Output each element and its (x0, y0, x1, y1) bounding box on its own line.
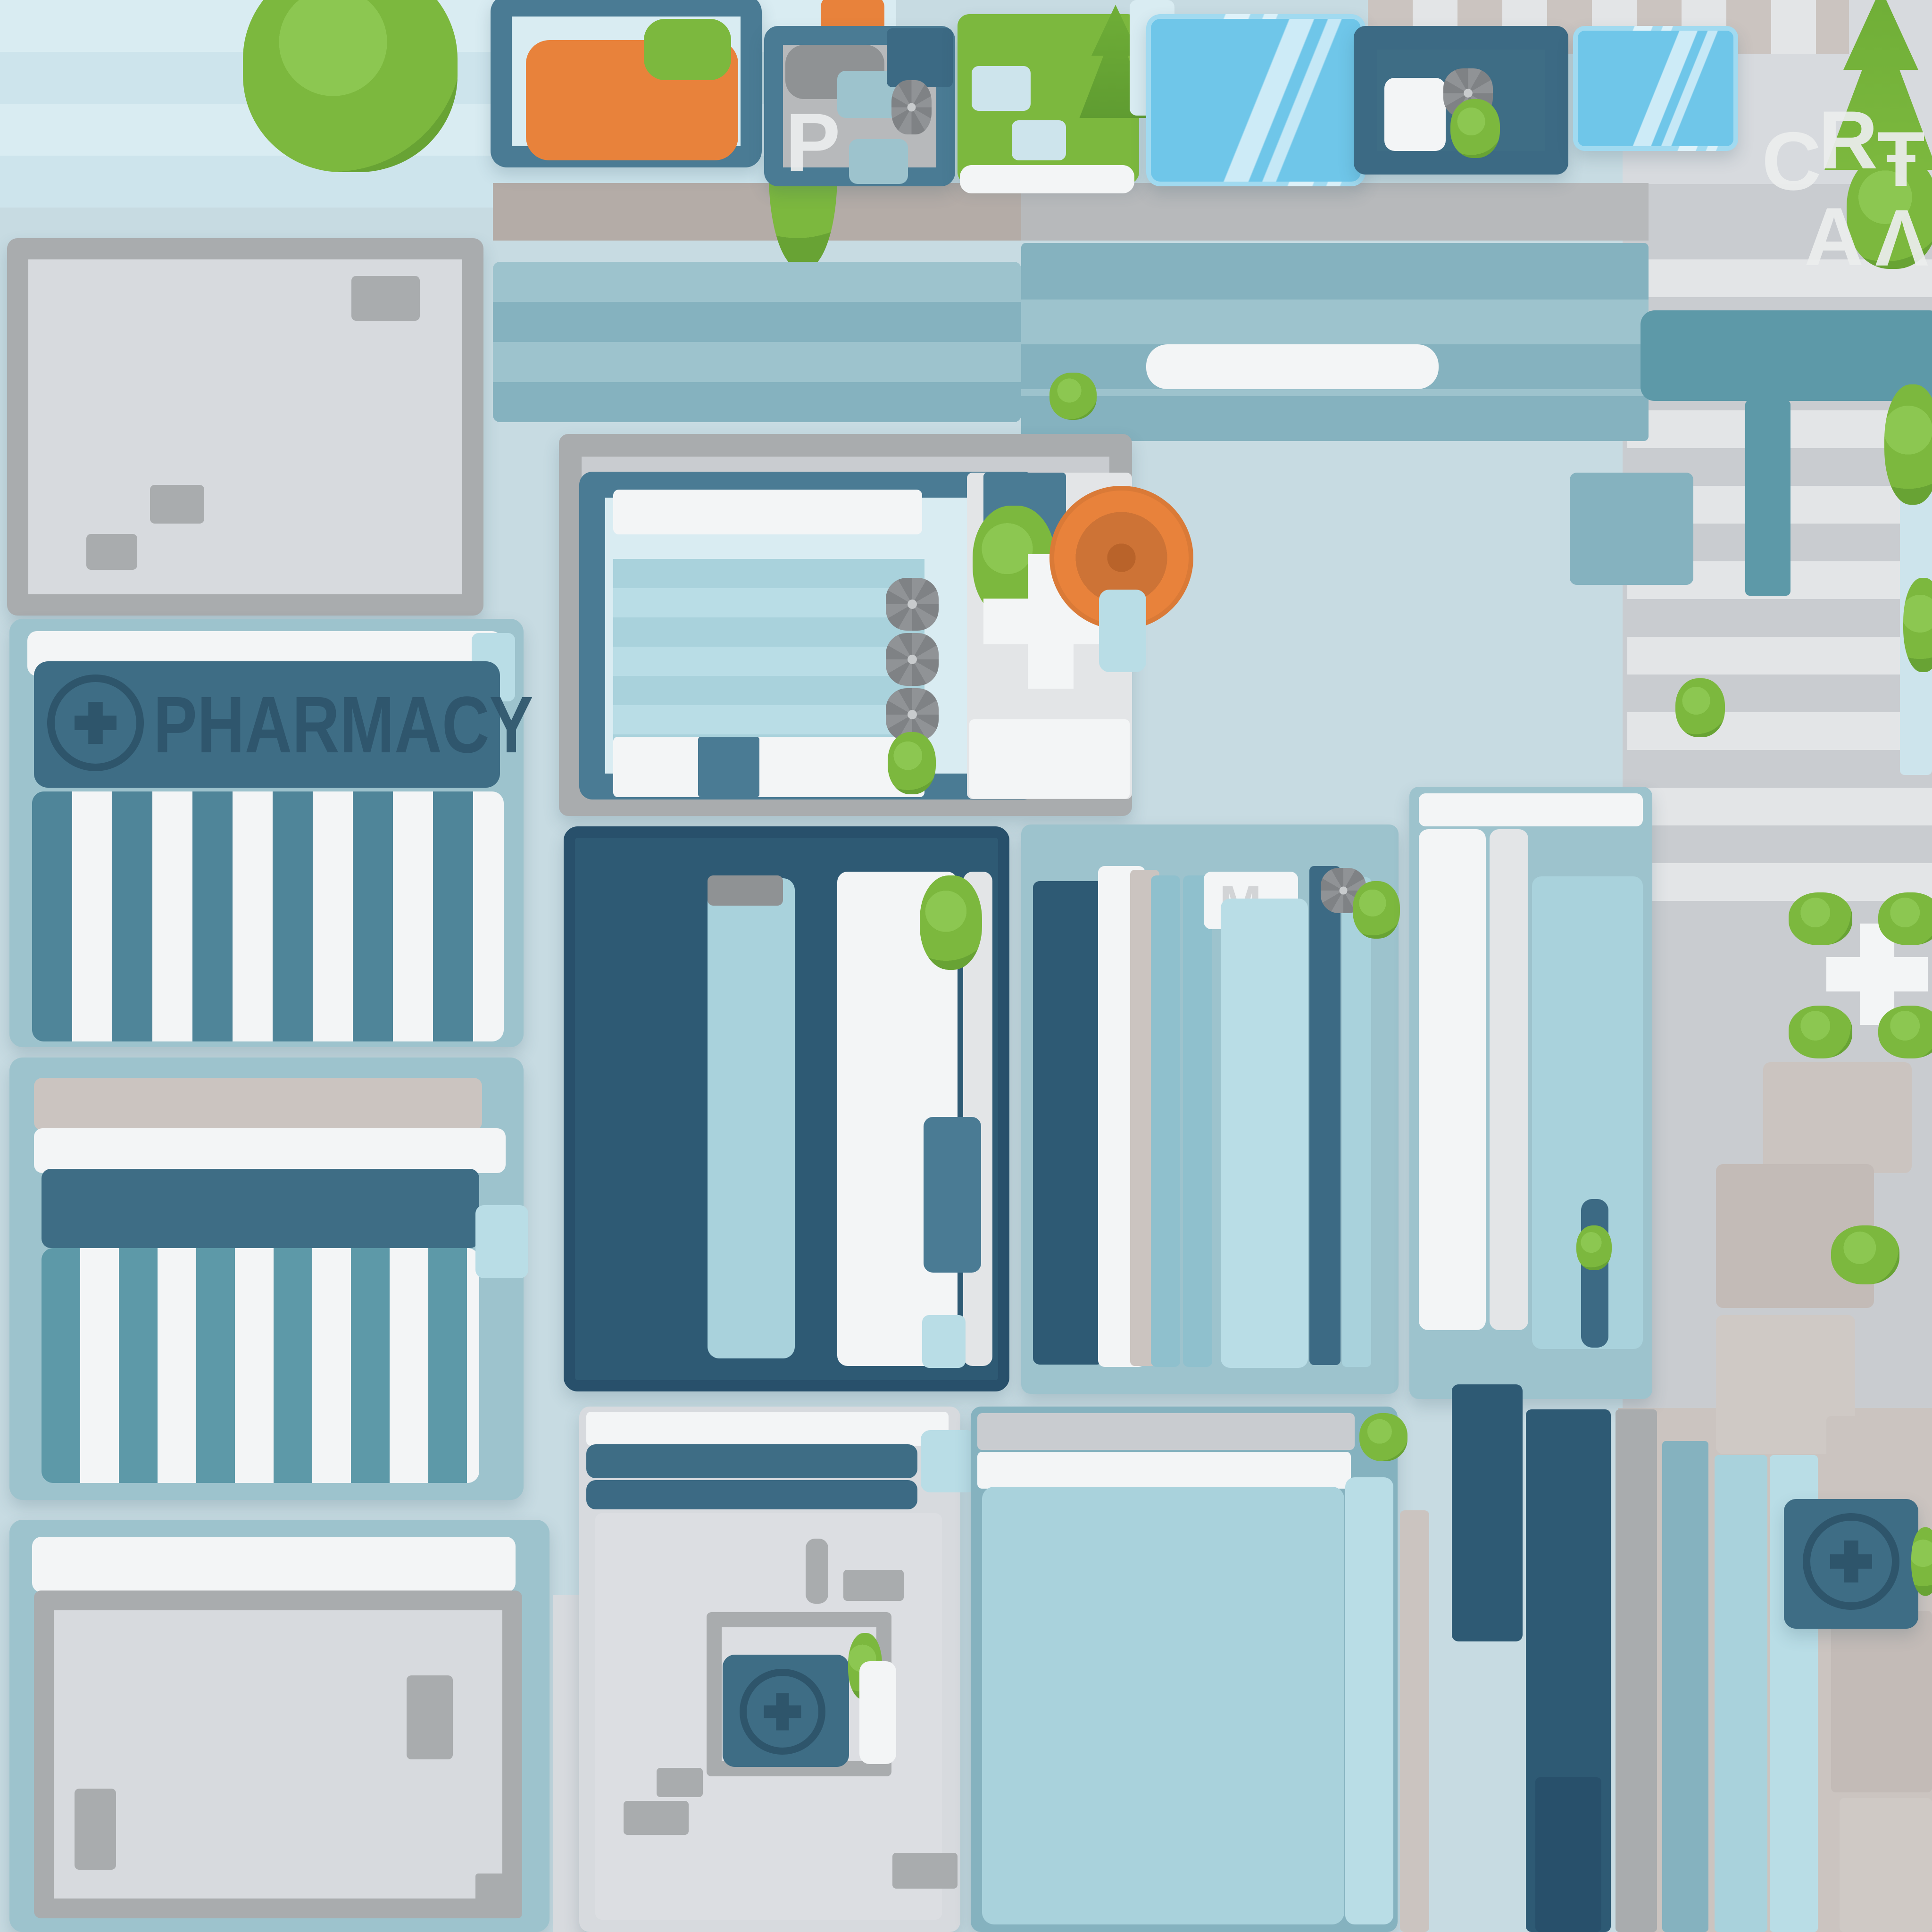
dispensary-ac (921, 1430, 976, 1492)
parking-letter: P (785, 101, 866, 184)
parking-fan (891, 80, 932, 134)
dispensary-van (859, 1661, 896, 1764)
clinic-palebox (1099, 590, 1146, 672)
arcade-rib-col-1 (1151, 875, 1180, 1367)
column-navy-left (1452, 1384, 1523, 1641)
arcade-rib-col-2 (1183, 875, 1212, 1367)
tree-large (243, 0, 458, 172)
garden-table-1 (972, 66, 1031, 111)
road-top-left (493, 183, 1021, 241)
canopy-bush (644, 19, 731, 80)
gallery-white-col-2 (1490, 829, 1528, 1330)
dispensary-band-1 (586, 1444, 917, 1478)
dispensary-vent-2 (657, 1768, 703, 1797)
atrium-panel (982, 1487, 1344, 1924)
block-tr-3 (1840, 1798, 1932, 1932)
column-teal (1662, 1441, 1708, 1932)
gallery-pencil (1581, 1199, 1608, 1348)
pharmacy-awning (32, 791, 504, 1041)
plaza-bush-4 (1878, 1006, 1932, 1058)
clinic-bush (888, 732, 936, 794)
atrium-light-col (1345, 1477, 1393, 1924)
depot-teal-unit (924, 1117, 981, 1273)
atrium-bush (1359, 1413, 1407, 1461)
atrium-taupe-col (1400, 1510, 1429, 1932)
shop-awning (42, 1248, 479, 1483)
plaza-bush-2 (1878, 892, 1932, 945)
beige-bush (1831, 1225, 1899, 1284)
warehouse-vent-2 (150, 485, 204, 524)
clinic-skylight-band (613, 490, 922, 534)
pavement-letter-l: Λ (1875, 198, 1932, 283)
edge-bush-1 (1884, 384, 1932, 505)
storehouse-corner (475, 1874, 522, 1918)
arcade-dark-col (1033, 881, 1104, 1365)
terrace-bush (1049, 373, 1097, 420)
city-map: PCRŦAΛMPHARMACY (0, 0, 1932, 1932)
skylight-large[interactable] (1146, 14, 1366, 186)
garden-walk (960, 165, 1134, 193)
walkway-teal-v (1745, 400, 1790, 596)
dispensary-vent-t (806, 1539, 828, 1604)
dispensary-cross-logo-cross-icon (764, 1693, 801, 1730)
column-gray (1616, 1409, 1657, 1932)
pharmacy-cross-logo-cross-icon (75, 702, 117, 744)
atrium-gray-band (977, 1413, 1355, 1450)
block-tr-2 (1831, 1611, 1932, 1792)
clinic-court-walk (969, 719, 1130, 799)
dispensary-cross-logo (740, 1669, 825, 1755)
shop-sign[interactable] (42, 1169, 479, 1248)
clinic-fan-1 (886, 578, 939, 631)
pavement-letter-a: A (1804, 196, 1875, 281)
dispensary-vent-1 (843, 1570, 904, 1601)
plaza-bush-1 (1789, 892, 1852, 945)
skylight-small[interactable] (1573, 26, 1738, 151)
pavement-letter-t: Ŧ (1877, 120, 1932, 205)
storehouse-white-band (32, 1537, 516, 1592)
pharmacy-cross-logo (47, 675, 144, 771)
courtyard-bush (1450, 99, 1500, 158)
dispensary-band-2 (586, 1480, 917, 1509)
terrace-white-walk (1146, 344, 1439, 389)
column-pale-1 (1715, 1455, 1767, 1932)
dispensary-vent-3 (624, 1801, 689, 1835)
shop-beige-band (34, 1078, 482, 1131)
block-beige-1 (1763, 1062, 1912, 1173)
depot-bush (920, 875, 982, 970)
first-aid-cross-logo-cross-icon (1830, 1541, 1873, 1583)
arcade-pale-col (1342, 877, 1371, 1367)
bench-white (1384, 78, 1446, 151)
gallery-band-top (1419, 793, 1643, 826)
first-aid-cross-logo (1803, 1513, 1899, 1610)
depot-skylight (708, 878, 795, 1358)
clinic-fan-2 (886, 633, 939, 686)
walkway-teal-h (1641, 310, 1932, 401)
depot-skylight-cap (708, 875, 783, 906)
gallery-white-col (1419, 829, 1486, 1330)
storehouse-vent-2 (75, 1789, 116, 1870)
shop-ac (475, 1205, 528, 1278)
atrium-white-band (977, 1452, 1351, 1489)
arcade-dark-col-2 (1309, 866, 1341, 1365)
arcade-bush (1353, 881, 1400, 939)
arcade-glass-panel (1221, 899, 1308, 1368)
column-navy-vent (1535, 1777, 1601, 1932)
mid-bush (1675, 678, 1725, 737)
clinic-glass-rows (613, 559, 924, 741)
clinic-white-mid (613, 737, 924, 797)
parking-navy-corner (887, 28, 953, 87)
storehouse-vent-1 (407, 1675, 453, 1759)
clinic-door[interactable] (698, 737, 759, 797)
dispensary-white-band (586, 1412, 949, 1446)
gallery-pencil-bush (1576, 1225, 1612, 1270)
warehouse-vent-3 (86, 534, 137, 570)
dispensary-vent-4 (892, 1853, 958, 1889)
pharmacy-name: PHARMACY (153, 685, 432, 774)
walkway-teal-small (1570, 473, 1693, 585)
first-aid-bush (1911, 1527, 1932, 1596)
warehouse-vent-1 (351, 276, 420, 321)
garden-table-2 (1012, 120, 1066, 160)
roof-terrace-rows (493, 262, 1021, 422)
shop-white-band (34, 1128, 506, 1173)
plaza-bush-3 (1789, 1006, 1852, 1058)
depot-pale-unit (922, 1315, 966, 1368)
